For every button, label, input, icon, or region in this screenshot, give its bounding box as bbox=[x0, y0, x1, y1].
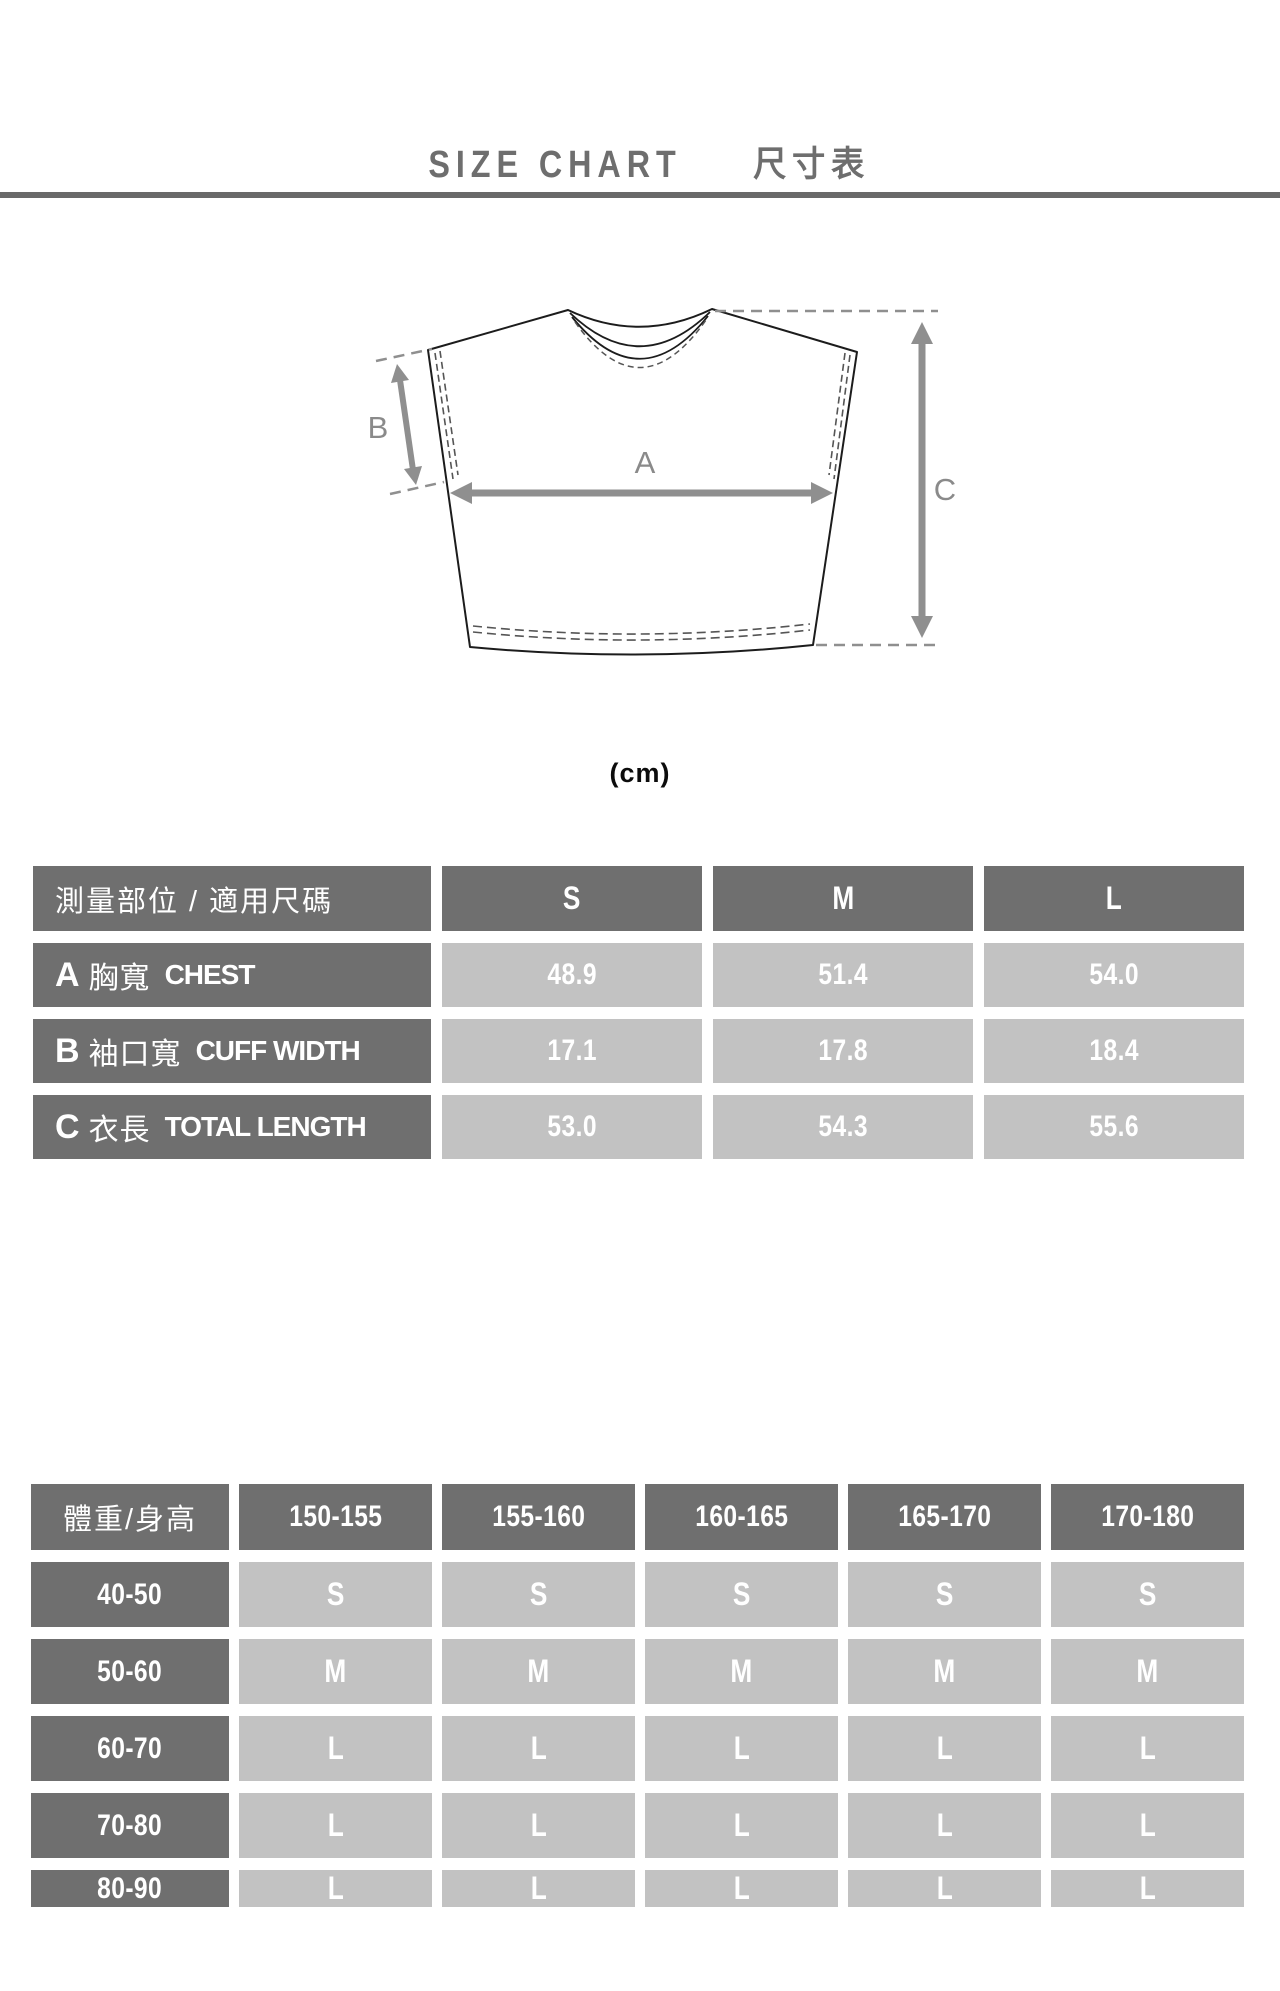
fit-cell: L bbox=[239, 1716, 432, 1781]
garment-diagram: A B C bbox=[330, 280, 1010, 700]
height-col-header-160-165: 160-165 bbox=[645, 1484, 838, 1550]
fit-cell: L bbox=[848, 1793, 1041, 1858]
shirt-outline bbox=[428, 309, 857, 655]
length-value-s: 53.0 bbox=[442, 1095, 702, 1159]
fit-cell: L bbox=[848, 1716, 1041, 1781]
fit-cell: L bbox=[239, 1870, 432, 1907]
fit-cell: M bbox=[645, 1639, 838, 1704]
height-col-header-150-155: 150-155 bbox=[239, 1484, 432, 1550]
fit-cell: L bbox=[1051, 1716, 1244, 1781]
size-table-corner-header: 測量部位 / 適用尺碼 bbox=[33, 866, 431, 931]
weight-row-label-80-90: 80-90 bbox=[31, 1870, 229, 1907]
title-divider-rule bbox=[0, 192, 1280, 198]
cuff-value-m: 17.8 bbox=[713, 1019, 973, 1083]
weight-row-label-40-50: 40-50 bbox=[31, 1562, 229, 1627]
size-col-header-s: S bbox=[442, 866, 702, 931]
unit-label: (cm) bbox=[0, 758, 1280, 789]
diagram-label-a: A bbox=[635, 445, 656, 480]
height-col-header-170-180: 170-180 bbox=[1051, 1484, 1244, 1550]
height-col-header-165-170: 165-170 bbox=[848, 1484, 1041, 1550]
length-value-m: 54.3 bbox=[713, 1095, 973, 1159]
fit-cell: L bbox=[645, 1716, 838, 1781]
fit-cell: L bbox=[645, 1793, 838, 1858]
fit-cell: M bbox=[239, 1639, 432, 1704]
weight-row-label-60-70: 60-70 bbox=[31, 1716, 229, 1781]
size-col-header-m: M bbox=[713, 866, 973, 931]
page-title-en: SIZE CHART bbox=[429, 146, 682, 184]
fit-cell: M bbox=[848, 1639, 1041, 1704]
diagram-label-c: C bbox=[934, 472, 956, 507]
chest-value-s: 48.9 bbox=[442, 943, 702, 1007]
weight-height-fit-table: 體重/身高 150-155 155-160 160-165 165-170 17… bbox=[31, 1484, 1244, 1907]
fit-cell: S bbox=[1051, 1562, 1244, 1627]
fit-cell: S bbox=[239, 1562, 432, 1627]
cuff-value-l: 18.4 bbox=[984, 1019, 1244, 1083]
chest-value-l: 54.0 bbox=[984, 943, 1244, 1007]
fit-cell: M bbox=[442, 1639, 635, 1704]
fit-cell: L bbox=[442, 1716, 635, 1781]
size-table-corner-label: 測量部位 / 適用尺碼 bbox=[55, 878, 333, 920]
measure-row-label-cuff-width: B 袖口寬 CUFF WIDTH bbox=[33, 1019, 431, 1083]
fit-cell: S bbox=[442, 1562, 635, 1627]
fit-cell: L bbox=[1051, 1793, 1244, 1858]
height-col-header-155-160: 155-160 bbox=[442, 1484, 635, 1550]
fit-cell: M bbox=[1051, 1639, 1244, 1704]
size-chart-page: SIZE CHART 尺寸表 bbox=[0, 0, 1280, 1991]
weight-row-label-50-60: 50-60 bbox=[31, 1639, 229, 1704]
fit-cell: L bbox=[239, 1793, 432, 1858]
page-title: SIZE CHART 尺寸表 bbox=[0, 146, 1280, 184]
size-col-header-l: L bbox=[984, 866, 1244, 931]
fit-cell: L bbox=[1051, 1870, 1244, 1907]
arrow-b-cuff bbox=[391, 364, 422, 485]
size-measurement-table: 測量部位 / 適用尺碼 S M L A 胸寬 CHEST 48.9 51.4 5… bbox=[33, 866, 1244, 1159]
diagram-label-b: B bbox=[368, 410, 389, 445]
fit-cell: L bbox=[442, 1870, 635, 1907]
chest-value-m: 51.4 bbox=[713, 943, 973, 1007]
fit-cell: L bbox=[442, 1793, 635, 1858]
fit-cell: L bbox=[645, 1870, 838, 1907]
fit-cell: S bbox=[848, 1562, 1041, 1627]
weight-row-label-70-80: 70-80 bbox=[31, 1793, 229, 1858]
length-value-l: 55.6 bbox=[984, 1095, 1244, 1159]
page-title-zh: 尺寸表 bbox=[754, 147, 871, 184]
fit-table-corner-header: 體重/身高 bbox=[31, 1484, 229, 1550]
fit-cell: L bbox=[848, 1870, 1041, 1907]
arrow-c-length bbox=[911, 322, 933, 638]
cuff-value-s: 17.1 bbox=[442, 1019, 702, 1083]
fit-cell: S bbox=[645, 1562, 838, 1627]
measure-row-label-total-length: C 衣長 TOTAL LENGTH bbox=[33, 1095, 431, 1159]
measure-row-label-chest: A 胸寬 CHEST bbox=[33, 943, 431, 1007]
